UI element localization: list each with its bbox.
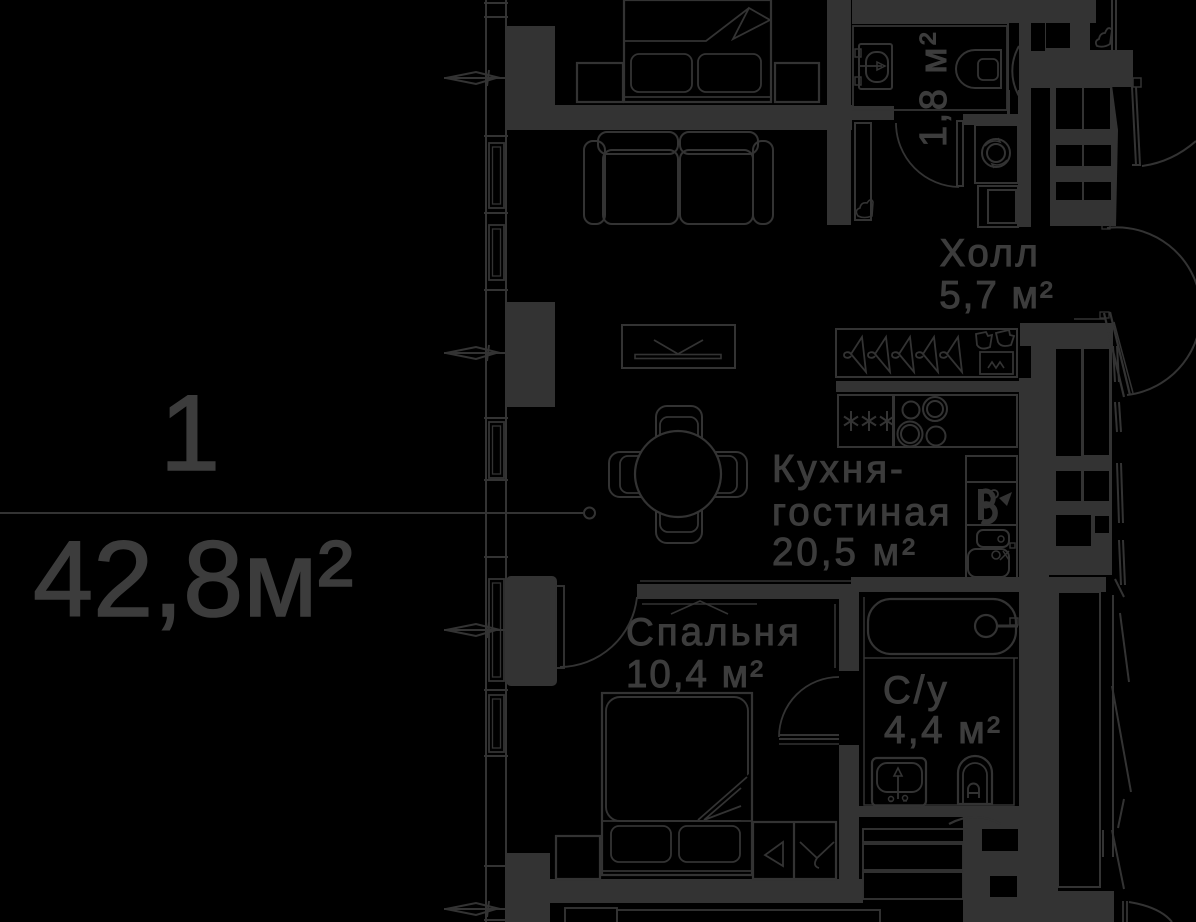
svg-text:20,5 м²: 20,5 м²	[772, 531, 918, 574]
svg-text:гостиная: гостиная	[772, 491, 953, 534]
svg-text:1: 1	[160, 372, 220, 493]
svg-text:Кухня-: Кухня-	[772, 448, 906, 491]
svg-text:5,7 м²: 5,7 м²	[939, 274, 1055, 317]
svg-text:Спальня: Спальня	[626, 611, 802, 654]
svg-text:42,8м²: 42,8м²	[33, 518, 353, 639]
svg-text:4,4 м²: 4,4 м²	[884, 709, 1003, 752]
svg-text:10,4 м²: 10,4 м²	[626, 653, 765, 696]
svg-text:Холл: Холл	[940, 232, 1041, 275]
svg-text:С/у: С/у	[883, 669, 950, 712]
svg-text:1,8 м²: 1,8 м²	[913, 30, 955, 147]
